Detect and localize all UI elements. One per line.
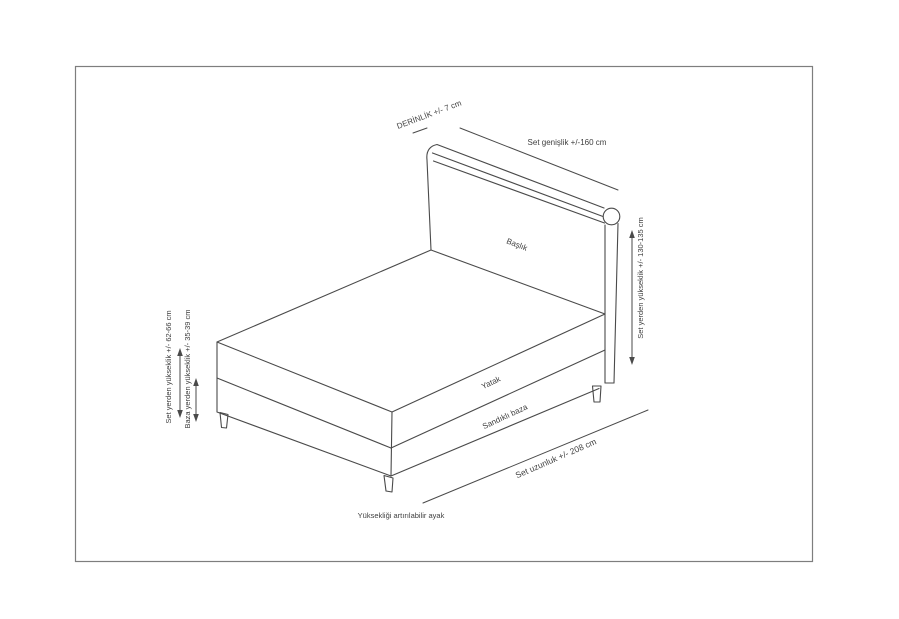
labels: DERİNLİK +/- 7 cm Set genişlik +/-160 cm… — [164, 98, 645, 520]
headboard — [427, 145, 620, 384]
leg-front — [384, 476, 393, 493]
label-adjustable-feet: Yüksekliği artırılabilir ayak — [358, 511, 445, 520]
headboard-roll-cap — [603, 208, 620, 225]
foot-face — [217, 342, 392, 476]
depth-dim-tick — [413, 128, 427, 133]
base-bottom-edge — [391, 389, 599, 477]
headboard-roll-line-3 — [434, 161, 605, 223]
label-mattress: Yatak — [480, 374, 503, 391]
base-height-left-dim — [193, 378, 199, 422]
foot-face-band-line — [217, 378, 391, 448]
label-set-width: Set genişlik +/-160 cm — [528, 138, 607, 147]
leg-right — [593, 386, 602, 402]
arrow-down-icon — [193, 414, 199, 422]
set-height-left-dim — [177, 348, 183, 418]
headboard-right-back-edge — [614, 224, 618, 384]
label-set-length: Set uzunluk +/- 208 cm — [514, 436, 598, 480]
arrow-down-icon — [177, 410, 183, 418]
label-base-height-left: Baza yerden yükseklik +/- 35-39 cm — [183, 309, 192, 428]
label-storage-base: Sandıklı baza — [481, 402, 529, 431]
technical-drawing-page: DERİNLİK +/- 7 cm Set genişlik +/-160 cm… — [0, 0, 899, 619]
mattress-top-face — [217, 250, 605, 412]
label-depth: DERİNLİK +/- 7 cm — [396, 98, 463, 130]
arrow-up-icon — [193, 378, 199, 386]
arrow-down-icon — [629, 357, 635, 365]
bed-dimension-diagram: DERİNLİK +/- 7 cm Set genişlik +/-160 cm… — [0, 0, 899, 619]
bed-drawing — [217, 145, 620, 493]
side-face — [391, 350, 605, 476]
headboard-roll-line-2 — [433, 153, 604, 217]
foot-face-outline — [217, 342, 392, 476]
label-set-height-right: Set yerden yükseklik +/- 130-135 cm — [636, 217, 645, 339]
label-headboard: Başlık — [505, 237, 529, 254]
label-set-height-left: Set yerden yükseklik +/- 62-66 cm — [164, 310, 173, 423]
arrow-up-icon — [629, 230, 635, 238]
set-length-dim-line — [423, 410, 648, 503]
set-height-right-dim — [629, 230, 635, 365]
arrow-up-icon — [177, 348, 183, 356]
